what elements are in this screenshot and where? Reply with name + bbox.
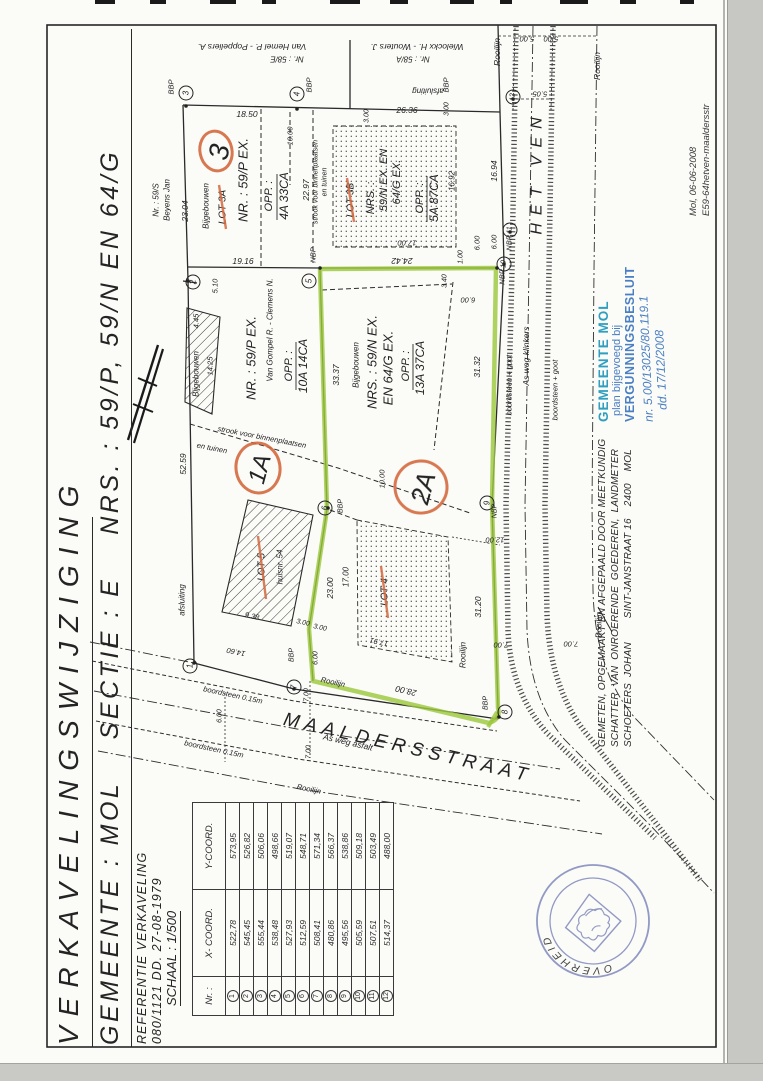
x-coord: 555,44 [254, 890, 268, 977]
dim-label: 7.00 [493, 641, 508, 650]
y-coord: 548,71 [296, 803, 310, 890]
dim-label: 7.00 [306, 745, 313, 759]
col-header-x: X- COORD. [193, 890, 226, 977]
reference-value: 080/1121 DD. 27-08-1979 [150, 877, 164, 1044]
table-header-row: Nr. : X- COORD. Y-COORD. [193, 803, 226, 1016]
dim-label: 23.00 [325, 577, 335, 600]
col-header-nr: Nr. : [193, 977, 226, 1016]
neighbor-name: Wielockx H. - Wouters J. [371, 42, 464, 52]
point-number: 5 [283, 990, 295, 1002]
outbuilding-label: Bijgebouwen [192, 351, 201, 397]
dim-label: 5.10 [211, 278, 220, 293]
dim-label: 9.38 [244, 610, 261, 622]
neighbor-parcel-number: Nr. : 58/A [396, 55, 430, 64]
table-row: 12514,37488,00 [380, 803, 394, 1016]
x-coord: 495,56 [338, 890, 352, 977]
dim-label: 14.25 [206, 356, 215, 376]
surveyor-text: SCHATTER VAN ONROERENDE GOEDEREN, LANDME… [609, 415, 622, 747]
stamp-text: plan bijgevoegd bij [611, 198, 623, 416]
dim-label: 5.00 [543, 35, 558, 44]
marker-code: NBP [505, 235, 514, 250]
lot-marker-number: 1A [243, 451, 277, 486]
point-number: 11 [367, 990, 379, 1002]
owner-name: Van Gompel R. - Clemens N. [266, 278, 275, 381]
y-coord: 538,86 [338, 803, 352, 890]
y-coord: 498,66 [268, 803, 282, 890]
building-line-label: Rooilijn [296, 782, 322, 796]
dim-label: 3.00 [296, 618, 311, 628]
municipal-stamp: GEMEENTE MOL plan bijgevoegd bij VERGUNN… [596, 198, 662, 422]
dim-label: 12.00 [485, 536, 505, 545]
outbuilding-label: Bijgebouwen [352, 342, 361, 388]
dim-label: 22.97 [301, 179, 311, 202]
point-number: 5 [305, 278, 314, 283]
dim-label: 24.42 [391, 256, 414, 266]
parcel-number: NR. : 59/P EX. [244, 316, 259, 400]
point-number: 3 [182, 90, 191, 95]
marker-code: NBP [309, 247, 318, 262]
point-number: 3 [255, 990, 267, 1002]
y-coord: 573,95 [226, 803, 240, 890]
x-coord: 507,51 [366, 890, 380, 977]
kerb-label: boordsteen + goot [505, 354, 514, 416]
outbuilding-label: Bijgebouwen [202, 183, 211, 229]
house-number-label: huisnr. 54 [276, 549, 285, 584]
corner-note: Mol, 06-06-2008 E59-64hetven-maaldersstr [688, 16, 716, 216]
green-boundary-highlight [309, 268, 499, 727]
table-row: 7508,41571,34 [310, 803, 324, 1016]
dim-label: 3.00 [444, 102, 451, 116]
dim-label: 4.45 [192, 313, 201, 328]
reference-label: REFERENTIE VERKAVELING [135, 852, 149, 1044]
strip-note: strook voor binnenplaatsen [217, 424, 307, 450]
dim-label: 23.04 [180, 200, 190, 223]
dim-label: 5.05 [532, 90, 547, 99]
marker-code: BBP [442, 77, 451, 92]
dim-label: 3.40 [442, 274, 449, 288]
table-row: 1522,78573,95 [226, 803, 240, 1016]
building-line-label: Rooilijn [459, 641, 468, 668]
subtitle-rule [131, 29, 132, 1047]
area-label: OPP. : [263, 181, 275, 212]
dim-label: 33.37 [331, 364, 341, 386]
scan-artifacts [95, 0, 694, 4]
parcel-number: NRS. : 59/N EX. [365, 315, 380, 409]
dim-label: 17.00 [397, 239, 417, 248]
dim-label: 7.00 [563, 640, 578, 649]
marker-code: NBP [492, 503, 499, 518]
marker-code: BBP [483, 696, 490, 710]
point-number: 6 [297, 990, 309, 1002]
dim-label: 28.00 [394, 684, 418, 699]
dim-label: 18.50 [236, 109, 258, 119]
building-line-label: Rooilijn [492, 38, 502, 66]
point-number: 9 [339, 990, 351, 1002]
building-line-label: Rooilijn [592, 52, 602, 80]
point-number: 1 [227, 990, 239, 1002]
title-block: VERKAVELINGSWIJZIGING GEMEENTE : MOL SEC… [47, 25, 180, 1047]
table-row: 2545,45526,82 [240, 803, 254, 1016]
col-header-y: Y-COORD. [193, 803, 226, 890]
strip-note: en tuinen [322, 167, 329, 196]
dim-label: 16.92 [448, 170, 457, 191]
point-number: 8 [501, 709, 510, 714]
parcel-number: EN 64/G EX. [381, 331, 396, 405]
table-row: 5527,93519,07 [282, 803, 296, 1016]
point-number: 2 [241, 990, 253, 1002]
street-name: HET VEN [529, 109, 546, 234]
dim-label: 3.00 [313, 623, 328, 633]
point-number: 12 [510, 93, 517, 101]
dim-label: 6.00 [473, 235, 482, 250]
scanned-plan-page: { "document": { "title": "VERKAVELINGSWI… [0, 0, 763, 1080]
dim-label: 6.00 [460, 296, 475, 305]
fence-label: afsluiting [412, 87, 444, 96]
neighbor-parcel-number: Nr. : 58/E [270, 55, 304, 64]
lion-emblem-icon [583, 906, 609, 931]
surveyor-name: SCHOETERS JOHAN SINT-JANSTRAAT 16 2400 M… [622, 415, 635, 747]
stamp-municipality: GEMEENTE MOL [596, 198, 611, 422]
area-value: 4A 33CA [277, 172, 291, 220]
table-row: 11507,51503,49 [366, 803, 380, 1016]
dim-label: 10.00 [378, 469, 387, 489]
y-coord: 526,82 [240, 803, 254, 890]
table-row: 6512,59548,71 [296, 803, 310, 1016]
parcel-number: 59/N EX. EN [378, 149, 390, 211]
page-title: VERKAVELINGSWIJZIGING [53, 476, 85, 1045]
dim-label: 31.20 [473, 596, 483, 618]
scale-label: SCHAAL : 1/500 [164, 911, 181, 1006]
x-coord: 480,86 [324, 890, 338, 977]
point-number: 7 [311, 990, 323, 1002]
lot-marker-number: 2A [404, 469, 441, 508]
table-row: 10505,59509,18 [352, 803, 366, 1016]
surveyor-note: GEMETEN, OPGEMAAKT EN AFGEPAALD DOOR MEE… [596, 415, 650, 747]
point-number: 8 [325, 990, 337, 1002]
table-row: 3555,44506,06 [254, 803, 268, 1016]
area-label: OPP. : [414, 183, 426, 214]
dim-label: 10.00 [286, 126, 295, 146]
y-coord: 509,18 [352, 803, 366, 890]
round-stamp: VLAAMSE OVERHEID [517, 845, 670, 998]
round-stamp-text: VLAAMSE OVERHEID [538, 906, 626, 997]
marker-code: NBP [498, 269, 507, 284]
y-coord: 488,00 [380, 803, 394, 890]
point-number: 4 [293, 91, 302, 96]
x-coord: 512,59 [296, 890, 310, 977]
point-number: 1 [186, 664, 195, 668]
x-coord: 508,41 [310, 890, 324, 977]
parcel-number: NRS. : [365, 182, 377, 214]
kerb-label: boordsteen 0.15m [202, 684, 263, 705]
title-rule [92, 517, 93, 1047]
point-number: 10 [353, 990, 365, 1002]
table-row: 4538,48498,66 [268, 803, 282, 1016]
strip-note: en tuinen [196, 441, 228, 456]
point-number: 6 [321, 505, 330, 510]
dim-label: 31.32 [472, 356, 482, 378]
point-number: 11 [507, 226, 514, 233]
table-row: 8480,86566,37 [324, 803, 338, 1016]
dim-label: 6.00 [313, 651, 320, 665]
point-number: 12 [381, 990, 393, 1002]
area-label: OPP. : [400, 351, 412, 382]
dim-label: 16.94 [489, 160, 499, 182]
x-coord: 538,48 [268, 890, 282, 977]
marker-code: BBP [289, 648, 296, 662]
plan-file-reference: E59-64hetven-maaldersstr [701, 16, 714, 216]
area-label: OPP. : [283, 351, 295, 382]
x-coord: 505,59 [352, 890, 366, 977]
x-coord: 545,45 [240, 890, 254, 977]
kerb-label: boordsteen 0.15m [183, 738, 244, 759]
point-number: 2 [189, 279, 198, 285]
lion-emblem-icon [557, 887, 627, 958]
area-value: 13A 37CA [413, 341, 427, 395]
table-row: 9495,56538,86 [338, 803, 352, 1016]
dim-label: 6.00 [490, 234, 499, 249]
y-coord: 506,06 [254, 803, 268, 890]
y-coord: 519,07 [282, 803, 296, 890]
x-coord: 527,93 [282, 890, 296, 977]
area-value: 10A 14CA [296, 339, 310, 393]
parcel-number: NR. : 59/P EX. [236, 138, 251, 222]
marker-code: BBP [338, 499, 345, 513]
x-coord: 522,78 [226, 890, 240, 977]
point-number: 4 [269, 990, 281, 1002]
strip-note: strook voor binnenplaatsen [313, 140, 320, 224]
dim-label: 3.00 [364, 109, 371, 123]
plan-date: Mol, 06-06-2008 [688, 16, 701, 216]
dim-label: 17.00 [342, 566, 351, 587]
dim-label: 5.00 [519, 35, 534, 44]
neighbor-name: Van Hemel P. - Poppeliers A. [198, 42, 307, 52]
point-number: 10 [501, 260, 508, 268]
kerb-label: boordsteen + goot [551, 359, 560, 421]
dim-label: 14.60 [225, 645, 246, 658]
dim-label: 26.36 [395, 105, 418, 115]
surveyor-text: GEMETEN, OPGEMAAKT EN AFGEPAALD DOOR MEE… [596, 415, 609, 747]
point-number: 7 [290, 684, 299, 689]
parcel-number: 64/G EX. [391, 160, 403, 205]
y-coord: 503,49 [366, 803, 380, 890]
dim-label: 19.16 [232, 256, 254, 266]
page-subtitle: GEMEENTE : MOL SECTIE : E NRS. : 59/P, 5… [96, 149, 125, 1045]
x-coord: 514,37 [380, 890, 394, 977]
marker-code: BBP [305, 77, 314, 92]
y-coord: 566,37 [324, 803, 338, 890]
coordinate-table: Nr. : X- COORD. Y-COORD. 1522,78573,95 2… [192, 806, 372, 1016]
dim-label: 7.00 [304, 688, 311, 702]
dim-label: 6.00 [217, 709, 224, 723]
road-axis-label: As weg klinkers [521, 326, 531, 387]
area-value: 5A 87CA [427, 174, 441, 222]
svg-text:VLAAMSE OVERHEID: VLAAMSE OVERHEID [538, 906, 626, 997]
point-number: 9 [483, 500, 492, 505]
dim-label: 1.00 [458, 250, 465, 264]
y-coord: 571,34 [310, 803, 324, 890]
